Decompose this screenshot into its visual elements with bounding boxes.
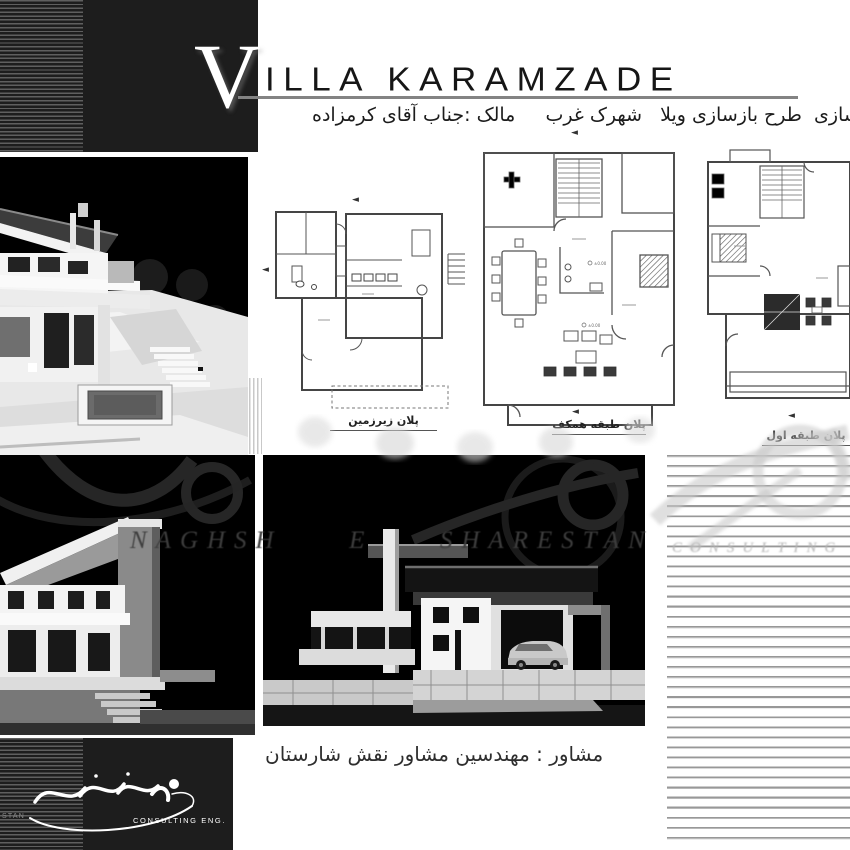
logo-sharestan-fragment: STAN bbox=[2, 813, 25, 820]
level-marker-text: ±0.00 bbox=[588, 323, 601, 328]
ground-plan-caption: پلان طبقه همکف bbox=[552, 418, 646, 435]
villa-3d-perspective-render bbox=[0, 157, 248, 455]
ruled-notes-block bbox=[667, 455, 850, 846]
company-logo-signature bbox=[0, 738, 233, 850]
logo-consulting-eng-text: CONSULTING ENG. bbox=[133, 816, 226, 825]
basement-floor-plan-drawing bbox=[262, 190, 465, 436]
header-pinstripes bbox=[0, 0, 83, 152]
section-arrow-icon: ◄ bbox=[788, 412, 795, 421]
presentation-board: V ILLA KARAMZADE بازسازی طرح بازسازی ویل… bbox=[0, 0, 850, 850]
level-marker-text: ±0.00 bbox=[594, 261, 607, 266]
ground-floor-plan-drawing: ±0.00 ±0.00 bbox=[472, 135, 688, 435]
page-title: ILLA KARAMZADE bbox=[265, 61, 682, 99]
basement-plan-caption: پلان زیرزمین bbox=[330, 414, 437, 431]
watermark-hatch-strip bbox=[249, 378, 262, 454]
watermark-consulting-text: CONSULTING bbox=[672, 540, 843, 557]
section-arrow-icon: ◄ bbox=[571, 129, 578, 138]
section-arrow-icon: ◄ bbox=[352, 196, 359, 205]
villa-front-elevation-render bbox=[263, 455, 645, 726]
section-arrow-icon: ◄ bbox=[572, 408, 579, 417]
watermark-latin-text: NAGHSH E SHARESTAN bbox=[130, 527, 654, 555]
first-plan-caption: پلان طبقه اول bbox=[762, 429, 850, 446]
first-floor-plan-drawing bbox=[700, 146, 850, 418]
title-initial-v: V bbox=[194, 30, 260, 122]
villa-side-elevation-render bbox=[0, 455, 255, 735]
section-arrow-icon: ◄ bbox=[262, 266, 269, 275]
project-subtitle-fa: بازسازی طرح بازسازی ویلا شهرک غرب مالک :… bbox=[312, 104, 850, 126]
consultant-caption: مشاور : مهندسین مشاور نقش شارستان bbox=[265, 742, 603, 766]
